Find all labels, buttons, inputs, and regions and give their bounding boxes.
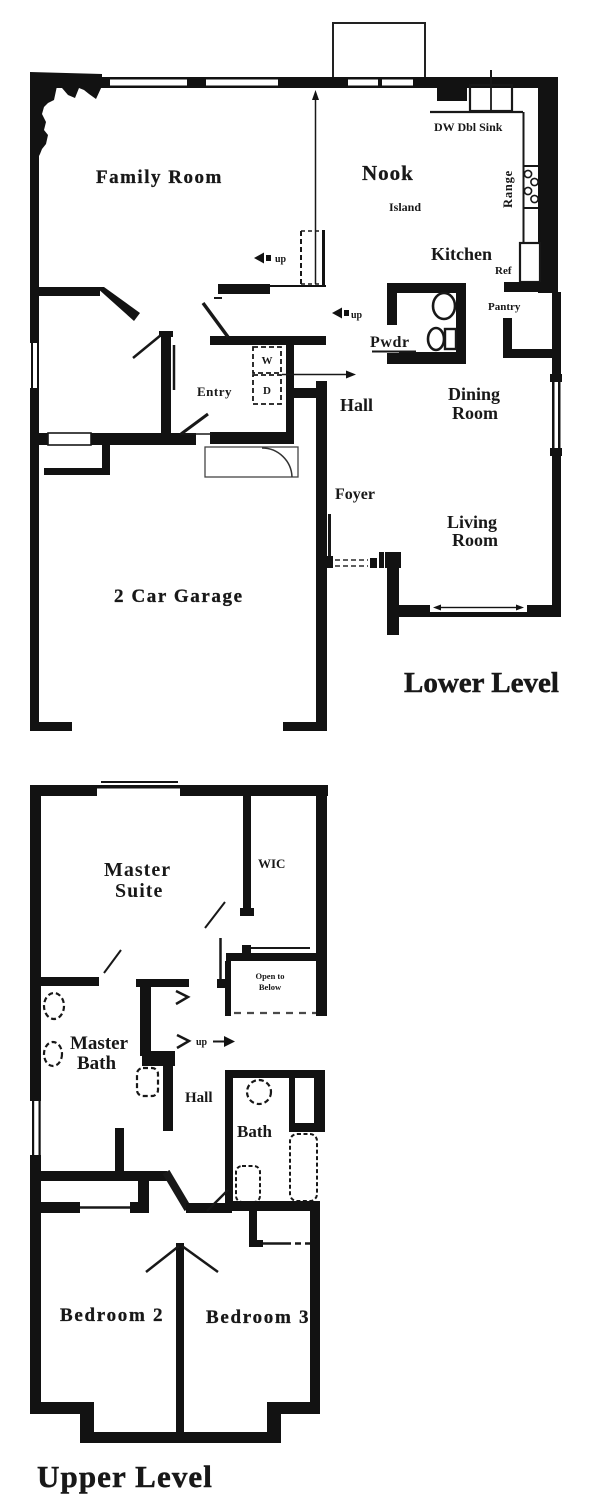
svg-text:Pantry: Pantry (488, 301, 521, 313)
svg-text:Room: Room (452, 530, 498, 550)
svg-text:Ref: Ref (495, 265, 512, 277)
svg-text:Hall: Hall (340, 395, 373, 415)
svg-text:2 Car Garage: 2 Car Garage (114, 586, 244, 607)
svg-text:Room: Room (452, 403, 498, 423)
svg-text:Bath: Bath (237, 1122, 273, 1141)
svg-text:Pwdr: Pwdr (370, 334, 410, 351)
svg-text:Lower Level: Lower Level (404, 667, 559, 699)
svg-text:up: up (275, 254, 287, 265)
svg-text:DW Dbl Sink: DW Dbl Sink (434, 120, 503, 134)
svg-text:Kitchen: Kitchen (431, 244, 492, 264)
svg-text:Upper Level: Upper Level (37, 1459, 213, 1494)
svg-text:Below: Below (259, 982, 282, 992)
svg-text:Dining: Dining (448, 384, 500, 404)
svg-text:Master: Master (70, 1033, 129, 1054)
svg-text:Island: Island (389, 200, 421, 214)
svg-text:Entry: Entry (197, 384, 232, 399)
svg-text:Master: Master (104, 859, 171, 881)
svg-text:Foyer: Foyer (335, 486, 375, 503)
svg-text:Living: Living (447, 512, 497, 532)
svg-text:Open to: Open to (255, 971, 284, 981)
svg-text:up: up (351, 310, 363, 321)
svg-text:Bath: Bath (77, 1053, 117, 1074)
svg-text:Suite: Suite (115, 880, 163, 902)
svg-text:W: W (262, 355, 273, 367)
svg-text:Hall: Hall (185, 1090, 213, 1106)
svg-text:Bedroom 2: Bedroom 2 (60, 1305, 164, 1326)
svg-text:WIC: WIC (258, 856, 285, 871)
svg-text:Nook: Nook (362, 161, 414, 185)
svg-text:Family Room: Family Room (96, 167, 223, 188)
svg-text:up: up (196, 1037, 208, 1048)
svg-text:Range: Range (501, 170, 515, 208)
svg-text:Bedroom 3: Bedroom 3 (206, 1307, 310, 1328)
svg-text:D: D (263, 385, 271, 397)
